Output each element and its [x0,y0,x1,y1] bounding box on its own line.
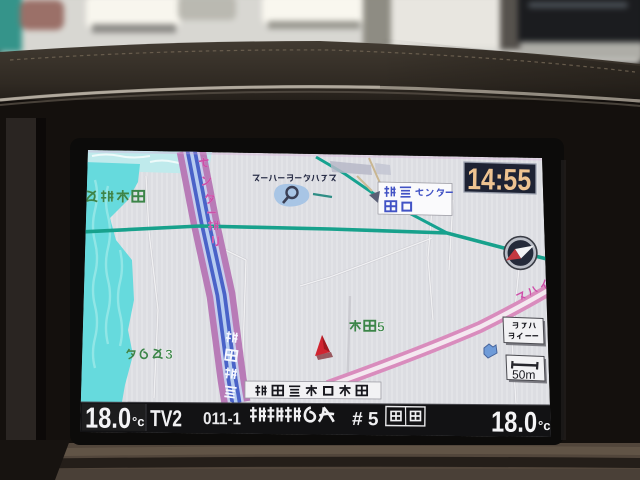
svg-text:18.0: 18.0 [85,403,131,435]
svg-text:°c: °c [132,414,145,429]
svg-text:3: 3 [165,346,173,362]
svg-text:# 5: # 5 [352,409,379,430]
svg-text:°c: °c [538,418,551,433]
svg-text:18.0: 18.0 [491,407,537,439]
svg-text:14:55: 14:55 [467,163,532,197]
svg-text:TV2: TV2 [150,405,182,431]
svg-text:50m: 50m [512,368,536,382]
svg-text:011-1: 011-1 [203,409,241,428]
svg-text:5: 5 [377,319,385,335]
